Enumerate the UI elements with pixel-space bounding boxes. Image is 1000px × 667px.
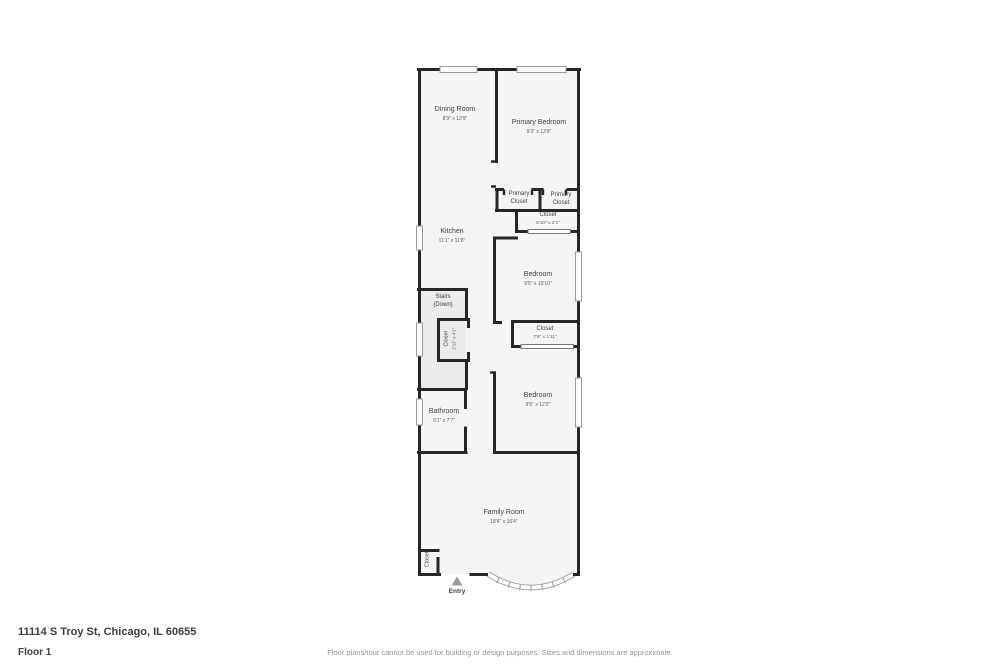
property-address: 11114 S Troy St, Chicago, IL 60655 <box>18 626 196 638</box>
floorplan-canvas <box>0 0 1000 667</box>
disclaimer-text: Floor plans/tour cannot be used for buil… <box>0 648 1000 657</box>
entry-arrow-icon <box>452 577 463 586</box>
floorplan-page: Dining Room 8'9" x 13'9" Primary Bedroom… <box>0 0 1000 667</box>
stairs-area <box>421 291 465 388</box>
entry-label: Entry <box>441 588 473 595</box>
floor-area <box>418 68 580 588</box>
